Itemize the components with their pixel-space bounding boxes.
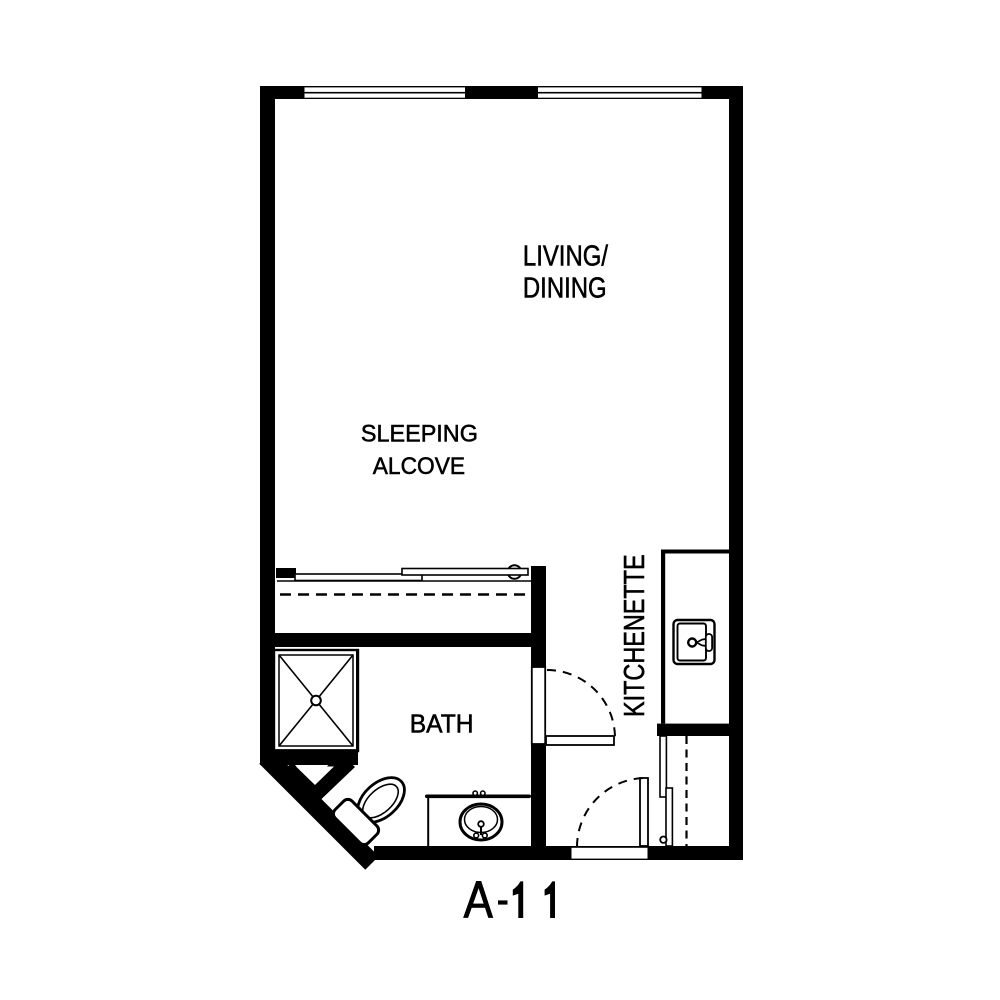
svg-text:KITCHENETTE: KITCHENETTE — [618, 554, 651, 717]
svg-text:SLEEPING: SLEEPING — [361, 420, 478, 448]
svg-text:BATH: BATH — [410, 710, 474, 739]
svg-text:LIVING/: LIVING/ — [523, 239, 609, 271]
svg-text:ALCOVE: ALCOVE — [373, 452, 465, 479]
svg-text:DINING: DINING — [523, 271, 607, 303]
